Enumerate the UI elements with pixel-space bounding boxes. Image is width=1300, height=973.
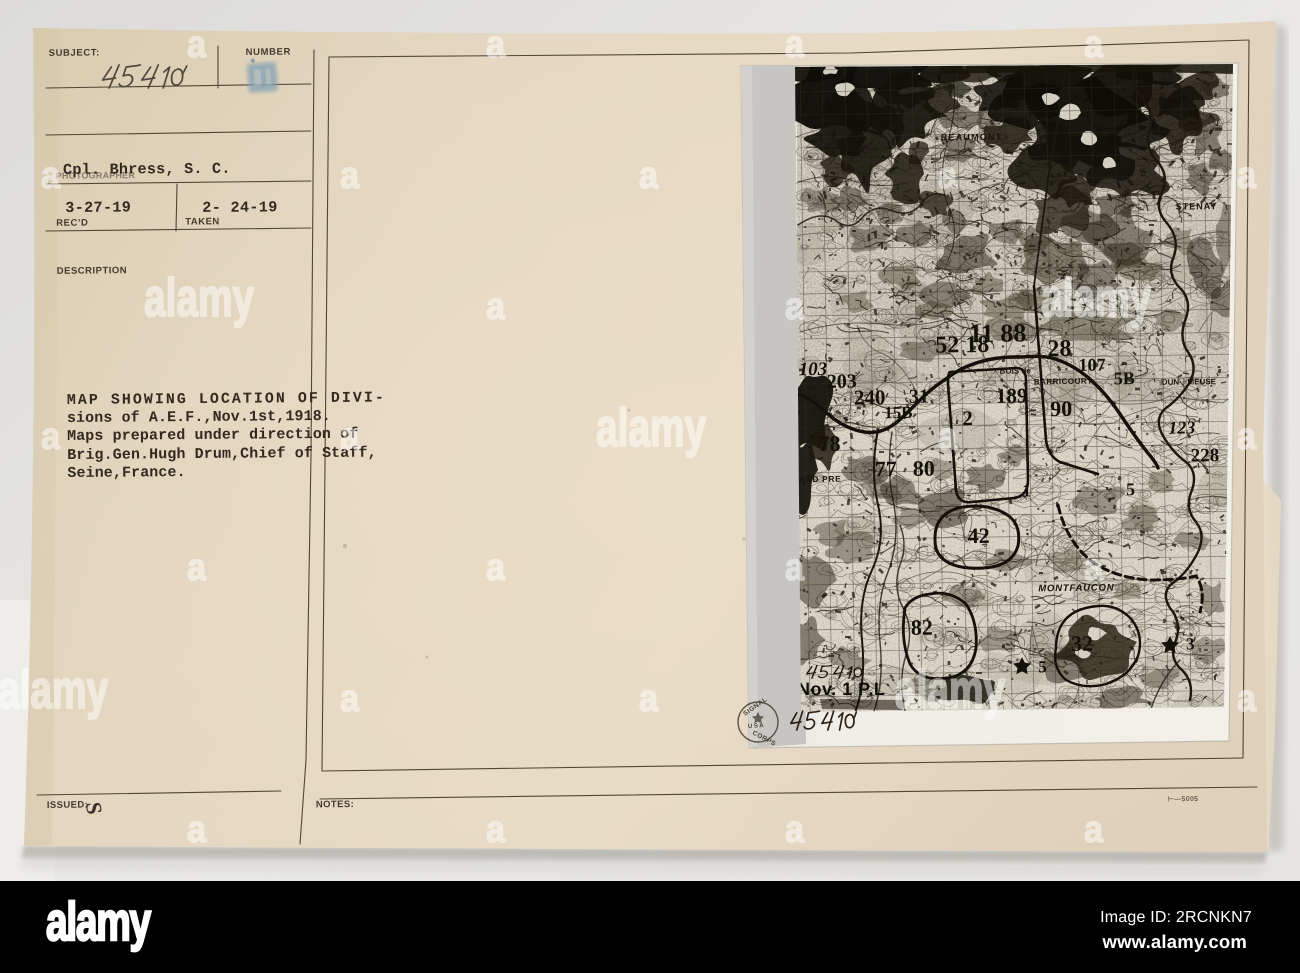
svg-text:189: 189 bbox=[996, 383, 1028, 407]
svg-text:alamy: alamy bbox=[895, 660, 1005, 720]
svg-text:a: a bbox=[938, 155, 958, 197]
svg-text:BEAUMONT: BEAUMONT bbox=[941, 132, 1003, 143]
svg-text:a: a bbox=[1237, 155, 1257, 197]
svg-text:a: a bbox=[785, 286, 805, 328]
svg-text:MONTFAUCON: MONTFAUCON bbox=[1038, 582, 1115, 594]
svg-text:a: a bbox=[785, 24, 805, 66]
svg-text:REC’D: REC’D bbox=[56, 218, 88, 229]
svg-text:5: 5 bbox=[1126, 479, 1135, 499]
svg-text:NOTES:: NOTES: bbox=[316, 799, 354, 810]
svg-text:228: 228 bbox=[1191, 445, 1220, 466]
svg-text:240: 240 bbox=[854, 385, 886, 409]
svg-text:Image ID: 2RCNKN7: Image ID: 2RCNKN7 bbox=[1100, 909, 1252, 926]
svg-text:BOIS de: BOIS de bbox=[1000, 366, 1032, 375]
svg-text:5: 5 bbox=[1038, 657, 1047, 676]
svg-text:alamy: alamy bbox=[46, 892, 151, 952]
svg-text:a: a bbox=[486, 809, 506, 851]
svg-text:32: 32 bbox=[1071, 631, 1093, 656]
svg-text:a: a bbox=[340, 155, 360, 197]
svg-text:123: 123 bbox=[1168, 417, 1195, 437]
svg-text:107: 107 bbox=[1078, 354, 1105, 374]
svg-text:DESCRIPTION: DESCRIPTION bbox=[57, 265, 128, 277]
svg-text:82: 82 bbox=[911, 615, 933, 640]
svg-text:a: a bbox=[187, 809, 207, 851]
svg-text:a: a bbox=[785, 547, 805, 589]
svg-text:www.alamy.com: www.alamy.com bbox=[1102, 931, 1248, 952]
svg-text:NUMBER: NUMBER bbox=[246, 47, 291, 58]
svg-text:⊢—5005: ⊢—5005 bbox=[1168, 795, 1199, 803]
svg-text:Cpl. Bhress, S. C.: Cpl. Bhress, S. C. bbox=[63, 160, 231, 179]
svg-text:a: a bbox=[187, 547, 207, 589]
svg-text:a: a bbox=[340, 678, 360, 720]
svg-text:BARRICOURT: BARRICOURT bbox=[1034, 377, 1093, 387]
svg-text:103: 103 bbox=[798, 359, 827, 380]
svg-text:a: a bbox=[785, 809, 805, 851]
svg-text:MAP SHOWING LOCATION OF DIVI-: MAP SHOWING LOCATION OF DIVI- bbox=[67, 389, 386, 409]
svg-text:80: 80 bbox=[913, 456, 935, 481]
svg-text:a: a bbox=[340, 416, 360, 458]
svg-text:alamy: alamy bbox=[596, 398, 706, 458]
svg-text:a: a bbox=[187, 24, 207, 66]
svg-text:77: 77 bbox=[875, 456, 897, 481]
svg-text:5B: 5B bbox=[1114, 368, 1135, 388]
svg-text:a: a bbox=[1237, 678, 1257, 720]
svg-text:a: a bbox=[938, 416, 958, 458]
svg-text:a: a bbox=[1084, 547, 1104, 589]
svg-text:alamy: alamy bbox=[1041, 268, 1151, 328]
svg-text:2- 24-19: 2- 24-19 bbox=[202, 198, 277, 217]
svg-text:alamy: alamy bbox=[144, 268, 254, 328]
svg-text:DUN·˩·MEUSE: DUN·˩·MEUSE bbox=[1162, 377, 1217, 387]
svg-text:a: a bbox=[1084, 24, 1104, 66]
svg-text:U S A: U S A bbox=[748, 722, 765, 730]
svg-text:Maps prepared under direction: Maps prepared under direction of bbox=[67, 426, 358, 445]
svg-text:3: 3 bbox=[1186, 634, 1195, 653]
svg-text:Nov. 1 P.L: Nov. 1 P.L bbox=[797, 679, 885, 699]
svg-text:2: 2 bbox=[962, 406, 973, 430]
svg-text:42: 42 bbox=[968, 523, 990, 548]
svg-text:sions of A.E.F.,Nov.1st,1918.: sions of A.E.F.,Nov.1st,1918. bbox=[67, 408, 331, 427]
svg-text:SUBJECT:: SUBJECT: bbox=[49, 47, 100, 58]
svg-text:STENAY: STENAY bbox=[1176, 201, 1218, 212]
svg-text:Seine,France.: Seine,France. bbox=[67, 464, 185, 482]
svg-text:a: a bbox=[639, 155, 659, 197]
svg-text:a: a bbox=[486, 286, 506, 328]
svg-text:Brig.Gen.Hugh Drum,Chief of St: Brig.Gen.Hugh Drum,Chief of Staff, bbox=[67, 445, 377, 464]
svg-text:a: a bbox=[41, 155, 61, 197]
svg-text:a: a bbox=[41, 416, 61, 458]
svg-text:TAKEN: TAKEN bbox=[185, 216, 220, 227]
svg-text:a: a bbox=[486, 547, 506, 589]
svg-text:a: a bbox=[1084, 809, 1104, 851]
svg-text:a: a bbox=[486, 24, 506, 66]
svg-text:alamy: alamy bbox=[0, 660, 108, 720]
svg-text:15B: 15B bbox=[884, 403, 913, 422]
svg-text:90: 90 bbox=[1050, 396, 1072, 421]
svg-text:a: a bbox=[1237, 416, 1257, 458]
svg-text:78: 78 bbox=[818, 431, 840, 456]
svg-text:1: 1 bbox=[1022, 480, 1031, 500]
svg-text:3-27-19: 3-27-19 bbox=[65, 198, 131, 217]
svg-text:203: 203 bbox=[827, 371, 857, 393]
svg-text:28: 28 bbox=[1047, 336, 1071, 362]
svg-text:11 88: 11 88 bbox=[969, 318, 1026, 348]
svg-text:a: a bbox=[639, 678, 659, 720]
